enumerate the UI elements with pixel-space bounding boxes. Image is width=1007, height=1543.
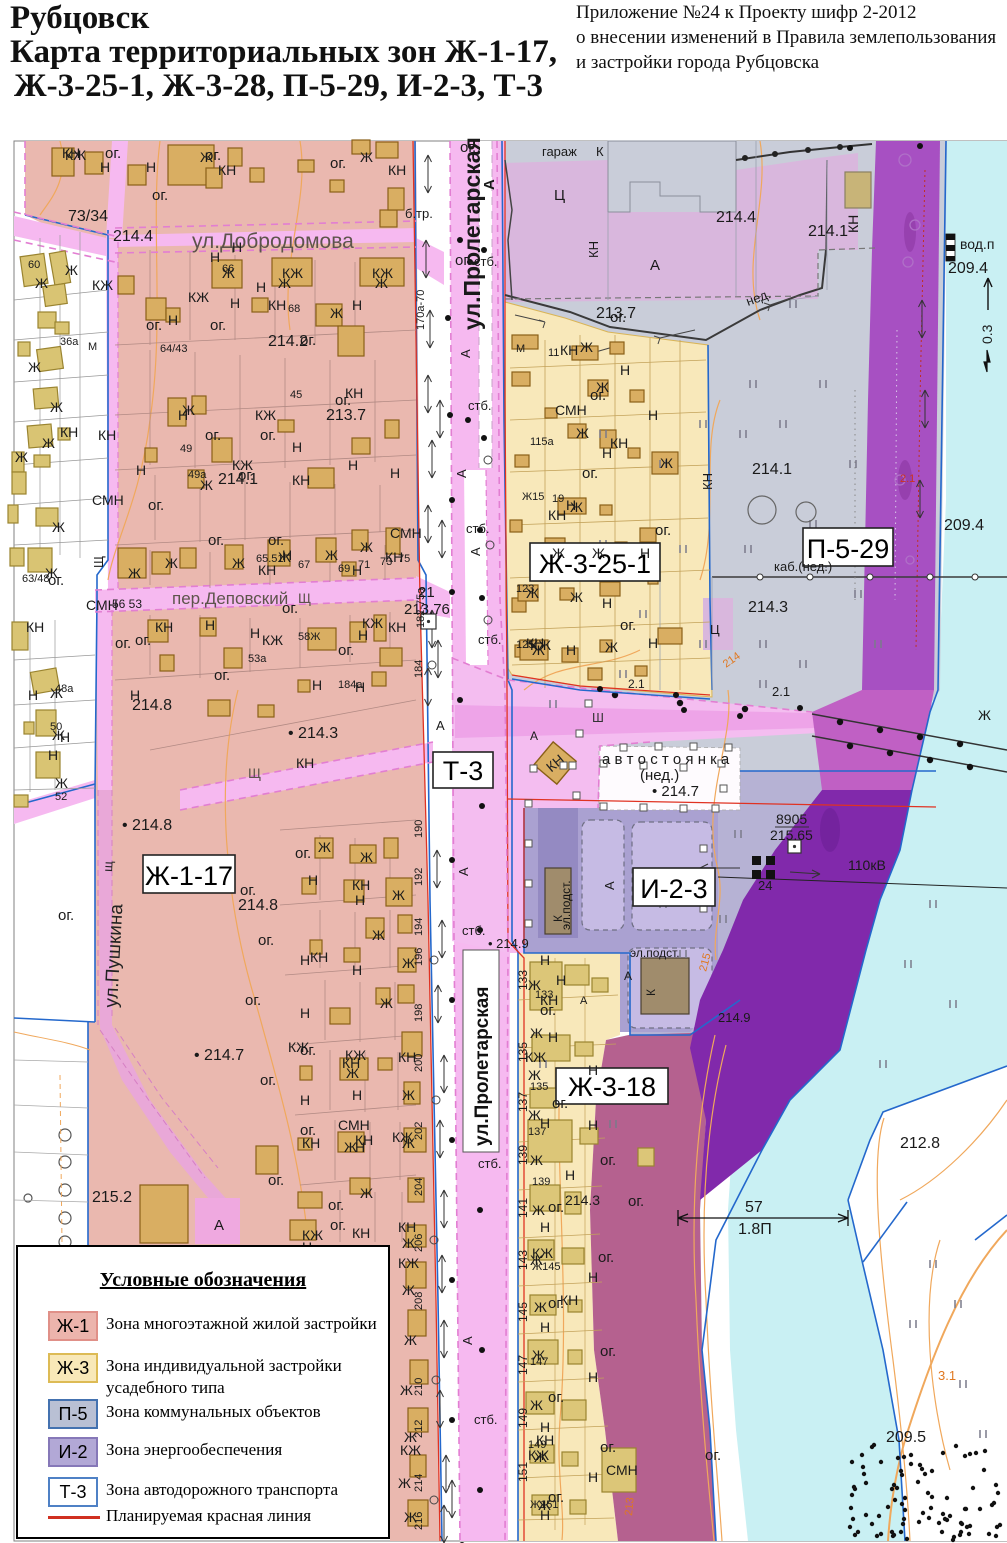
- svg-text:ог.: ог.: [455, 252, 471, 269]
- svg-text:Н: Н: [648, 635, 658, 651]
- svg-text:204: 204: [413, 1178, 425, 1196]
- svg-text:КЖ: КЖ: [65, 147, 86, 163]
- svg-text:ог.: ог.: [460, 139, 476, 156]
- svg-text:145: 145: [516, 1302, 530, 1322]
- svg-text:Н: Н: [556, 972, 566, 988]
- svg-text:Ж: Ж: [530, 1397, 543, 1413]
- svg-text:КЖ: КЖ: [400, 1442, 421, 1458]
- svg-text:А: А: [458, 349, 473, 358]
- svg-text:Ж-1-17: Ж-1-17: [145, 861, 233, 891]
- svg-text:Н: Н: [136, 462, 146, 478]
- svg-text:Т-3: Т-3: [443, 756, 484, 786]
- svg-text:Н: Н: [620, 362, 630, 378]
- svg-text:КЖ: КЖ: [532, 1245, 553, 1261]
- svg-text:Н: Н: [250, 625, 260, 641]
- svg-text:ог.: ог.: [620, 617, 636, 634]
- svg-text:КН: КН: [218, 162, 236, 178]
- svg-text:ог.: ог.: [600, 1439, 616, 1456]
- svg-text:Ж: Ж: [28, 359, 41, 375]
- svg-text:45: 45: [290, 389, 302, 401]
- svg-text:КЖ: КЖ: [302, 1227, 323, 1243]
- svg-text:КН: КН: [345, 385, 363, 401]
- svg-text:КН: КН: [26, 619, 44, 635]
- svg-text:149: 149: [516, 1408, 530, 1428]
- svg-text:А: А: [481, 179, 498, 190]
- svg-text:А: А: [650, 257, 660, 274]
- svg-text:ог.: ог.: [214, 667, 230, 684]
- svg-text:М: М: [88, 341, 97, 353]
- svg-text:Н: Н: [300, 1092, 310, 1108]
- svg-text:Ж: Ж: [532, 1202, 545, 1218]
- svg-text:КЖ: КЖ: [362, 615, 383, 631]
- svg-text:КЖ: КЖ: [345, 1047, 366, 1063]
- svg-text:73: 73: [380, 556, 392, 568]
- svg-text:50: 50: [50, 721, 62, 733]
- svg-text:ул.Пролетарская: ул.Пролетарская: [472, 987, 493, 1146]
- svg-text:ог.: ог.: [338, 642, 354, 659]
- svg-text:А: А: [624, 969, 632, 983]
- svg-text:214.9: 214.9: [718, 1010, 751, 1025]
- svg-text:а в т о с т о я н к а: а в т о с т о я н к а: [602, 751, 730, 768]
- svg-text:ог.: ог.: [705, 1447, 721, 1464]
- svg-text:СМН: СМН: [92, 492, 124, 508]
- svg-text:ог.: ог.: [552, 1095, 568, 1112]
- svg-text:Ж: Ж: [35, 275, 48, 291]
- svg-text:А: А: [456, 867, 471, 876]
- svg-text:213: 213: [623, 1497, 637, 1516]
- svg-text:ог.: ог.: [260, 1072, 276, 1089]
- svg-text:0.3: 0.3: [979, 324, 995, 344]
- svg-text:214.1: 214.1: [808, 223, 848, 240]
- svg-text:ог.: ог.: [135, 632, 151, 649]
- svg-text:57: 57: [745, 1199, 763, 1216]
- svg-text:КН: КН: [292, 472, 310, 488]
- svg-text:И-2-3: И-2-3: [640, 874, 707, 904]
- svg-text:123: 123: [516, 583, 534, 595]
- svg-text:Н: Н: [640, 545, 650, 561]
- svg-text:214.4: 214.4: [113, 228, 153, 245]
- svg-text:ог.: ог.: [210, 317, 226, 334]
- svg-text:Ж: Ж: [318, 839, 331, 855]
- svg-text:ог.: ог.: [208, 532, 224, 549]
- svg-text:ог.: ог.: [582, 465, 598, 482]
- svg-text:48а: 48а: [55, 683, 74, 695]
- svg-text:151: 151: [516, 1462, 530, 1482]
- svg-text:ог.: ог.: [295, 845, 311, 862]
- svg-text:КН: КН: [60, 424, 78, 440]
- svg-text:стб.: стб.: [466, 521, 490, 536]
- svg-text:133: 133: [535, 989, 553, 1001]
- svg-text:ог.: ог.: [328, 1197, 344, 1214]
- svg-text:209.5: 209.5: [886, 1429, 926, 1446]
- svg-text:стб.: стб.: [474, 254, 498, 269]
- svg-text:ог.: ог.: [600, 1343, 616, 1360]
- svg-text:Н: Н: [210, 249, 220, 265]
- svg-text:Ж: Ж: [592, 545, 605, 561]
- svg-text:стб.: стб.: [468, 398, 492, 413]
- svg-text:215.65: 215.65: [770, 827, 813, 843]
- svg-text:214.8: 214.8: [238, 897, 278, 914]
- svg-text:ог.: ог.: [260, 427, 276, 444]
- svg-text:Н: Н: [352, 962, 362, 978]
- svg-text:65.51: 65.51: [256, 553, 284, 565]
- svg-text:71: 71: [358, 559, 370, 571]
- svg-text:170а-70: 170а-70: [415, 290, 427, 330]
- svg-text:Ж: Ж: [404, 1509, 417, 1525]
- svg-text:147: 147: [516, 1355, 530, 1375]
- svg-text:3.1: 3.1: [938, 1368, 956, 1383]
- svg-text:58Ж: 58Ж: [298, 631, 320, 643]
- svg-text:Ж: Ж: [404, 1332, 417, 1348]
- svg-text:ог.: ог.: [655, 522, 671, 539]
- svg-text:КН: КН: [352, 1225, 370, 1241]
- svg-text:Ж: Ж: [580, 339, 593, 355]
- svg-text:214.1: 214.1: [752, 461, 792, 478]
- svg-text:125: 125: [516, 639, 534, 651]
- svg-text:Щ: Щ: [298, 590, 311, 606]
- svg-text:Н: Н: [540, 1219, 550, 1235]
- svg-text:68: 68: [288, 303, 300, 315]
- svg-text:стб.: стб.: [462, 923, 486, 938]
- svg-text:А: А: [436, 718, 445, 733]
- svg-text:КЖ: КЖ: [262, 632, 283, 648]
- svg-text:49а: 49а: [188, 469, 207, 481]
- svg-text:Ж: Ж: [200, 149, 213, 165]
- svg-text:КЖ: КЖ: [92, 277, 113, 293]
- svg-text:М: М: [516, 343, 525, 355]
- svg-text:115а: 115а: [530, 436, 555, 448]
- svg-text:КН: КН: [355, 1132, 373, 1148]
- svg-text:Ж: Ж: [360, 1185, 373, 1201]
- svg-text:Н: Н: [602, 595, 612, 611]
- svg-text:Ж: Ж: [392, 887, 405, 903]
- svg-text:КН: КН: [296, 755, 314, 771]
- svg-text:ог.: ог.: [628, 1193, 644, 1210]
- svg-text:Ж: Ж: [325, 547, 338, 563]
- svg-text:63/48: 63/48: [22, 573, 50, 585]
- svg-text:Ц: Ц: [554, 187, 565, 204]
- svg-text:ог.: ог.: [548, 1389, 564, 1406]
- svg-text:Н: Н: [390, 465, 400, 481]
- svg-text:Ж: Ж: [380, 995, 393, 1011]
- svg-text:А: А: [580, 995, 588, 1007]
- svg-text:Щ: Щ: [91, 556, 106, 568]
- svg-text:гараж: гараж: [542, 144, 577, 159]
- svg-text:СМН: СМН: [338, 1117, 370, 1133]
- svg-text:Ж: Ж: [360, 149, 373, 165]
- svg-text:143: 143: [516, 1250, 530, 1270]
- svg-text:КН: КН: [98, 427, 116, 443]
- svg-text:139: 139: [516, 1145, 530, 1165]
- svg-text:стб.: стб.: [478, 1156, 502, 1171]
- svg-text:67: 67: [298, 559, 310, 571]
- svg-text:213.7: 213.7: [326, 407, 366, 424]
- svg-text:209.4: 209.4: [944, 517, 984, 534]
- svg-text:209.4: 209.4: [948, 260, 988, 277]
- svg-text:Н: Н: [230, 295, 240, 311]
- svg-text:198: 198: [413, 1004, 425, 1022]
- svg-text:Н: Н: [256, 279, 266, 295]
- svg-text:пер.Деповский: пер.Деповский: [172, 589, 288, 608]
- svg-text:КЖ: КЖ: [288, 1039, 309, 1055]
- svg-text:Н: Н: [300, 952, 310, 968]
- svg-text:СМН: СМН: [606, 1462, 638, 1478]
- svg-text:137: 137: [528, 1126, 546, 1138]
- svg-text:Ж: Ж: [530, 1152, 543, 1168]
- svg-text:Н: Н: [566, 642, 576, 658]
- svg-text:Н: Н: [312, 677, 322, 693]
- svg-text:135: 135: [530, 1081, 548, 1093]
- svg-text:Ж: Ж: [15, 449, 28, 465]
- svg-text:215.2: 215.2: [92, 1189, 132, 1206]
- svg-text:212.8: 212.8: [900, 1135, 940, 1152]
- svg-text:К: К: [644, 989, 658, 996]
- svg-text:Ж: Ж: [552, 545, 565, 561]
- svg-text:Н: Н: [588, 1062, 598, 1078]
- svg-text:КЖ: КЖ: [188, 289, 209, 305]
- svg-text:Н: Н: [292, 439, 302, 455]
- svg-text:ог.: ог.: [610, 309, 626, 326]
- svg-text:А: А: [454, 469, 469, 478]
- svg-text:147: 147: [530, 1356, 548, 1368]
- svg-text:Н: Н: [300, 1005, 310, 1021]
- svg-text:КН: КН: [388, 162, 406, 178]
- svg-text:каб.(нед.): каб.(нед.): [774, 559, 832, 574]
- svg-text:52: 52: [55, 791, 67, 803]
- svg-text:Н: Н: [588, 1469, 598, 1485]
- svg-text:Ж151: Ж151: [530, 1499, 559, 1511]
- svg-text:110кВ: 110кВ: [848, 857, 886, 873]
- svg-text:182-75а: 182-75а: [415, 587, 427, 628]
- svg-text:Ж: Ж: [402, 1235, 415, 1251]
- svg-text:Н: Н: [588, 1117, 598, 1133]
- svg-text:Ж: Ж: [52, 519, 65, 535]
- svg-text:КН: КН: [310, 949, 328, 965]
- svg-text:ог.: ог.: [146, 317, 162, 334]
- svg-text:2.1: 2.1: [900, 473, 915, 485]
- svg-text:Ж: Ж: [402, 1282, 415, 1298]
- svg-text:А: А: [460, 1336, 475, 1345]
- svg-text:КН: КН: [560, 342, 578, 358]
- svg-text:149: 149: [528, 1439, 546, 1451]
- svg-text:КЖ: КЖ: [232, 457, 253, 473]
- svg-text:11: 11: [548, 347, 559, 359]
- svg-text:Н: Н: [352, 1087, 362, 1103]
- svg-text:КН: КН: [586, 241, 601, 258]
- svg-text:КН: КН: [155, 619, 173, 635]
- svg-text:КН: КН: [548, 507, 566, 523]
- svg-text:Н: Н: [168, 312, 178, 328]
- svg-text:2.1: 2.1: [628, 677, 645, 691]
- svg-text:А: А: [214, 1217, 224, 1234]
- svg-text:Ж: Ж: [978, 707, 991, 723]
- svg-text:Ж: Ж: [50, 399, 63, 415]
- svg-text:СМН: СМН: [555, 402, 587, 418]
- svg-text:КН: КН: [388, 619, 406, 635]
- svg-text:ог.: ог.: [148, 497, 164, 514]
- svg-text:Н: Н: [548, 1029, 558, 1045]
- svg-text:КН: КН: [302, 1135, 320, 1151]
- svg-text:Ж: Ж: [360, 539, 373, 555]
- svg-text:Ж: Ж: [660, 455, 673, 471]
- svg-text:Н: Н: [205, 617, 215, 633]
- svg-text:КН: КН: [610, 435, 628, 451]
- svg-text:ог.: ог.: [58, 907, 74, 924]
- svg-text:ул.Пролетарская: ул.Пролетарская: [459, 137, 485, 330]
- svg-text:Ш: Ш: [592, 710, 604, 725]
- svg-text:75: 75: [398, 553, 410, 565]
- svg-text:• 214.7: • 214.7: [194, 1047, 244, 1064]
- svg-text:214.3: 214.3: [748, 599, 788, 616]
- svg-text:66: 66: [222, 263, 234, 275]
- svg-text:184: 184: [413, 660, 425, 678]
- svg-text:Ж: Ж: [570, 589, 583, 605]
- svg-text:194: 194: [413, 918, 425, 936]
- svg-text:53а: 53а: [248, 653, 267, 665]
- svg-text:ог.: ог.: [598, 1249, 614, 1266]
- svg-text:Н: Н: [352, 297, 362, 313]
- svg-text:Ж: Ж: [232, 555, 245, 571]
- svg-text:ог.: ог.: [300, 332, 316, 349]
- svg-text:• 214.8: • 214.8: [122, 817, 172, 834]
- svg-text:Н: Н: [648, 407, 658, 423]
- svg-text:ог.: ог.: [330, 155, 346, 172]
- svg-text:КЖ: КЖ: [282, 265, 303, 281]
- svg-text:Ж: Ж: [570, 499, 583, 515]
- svg-text:А: А: [530, 729, 538, 743]
- svg-text:ог.: ог.: [268, 1172, 284, 1189]
- svg-text:60: 60: [28, 259, 40, 271]
- svg-text:Ж: Ж: [128, 565, 141, 581]
- svg-text:214: 214: [413, 1474, 425, 1492]
- svg-text:КЖ: КЖ: [372, 265, 393, 281]
- svg-text:эл.подст.: эл.подст.: [630, 946, 680, 960]
- svg-text:Н: Н: [308, 872, 318, 888]
- svg-text:190: 190: [413, 820, 425, 838]
- svg-text:Н: Н: [540, 1319, 550, 1335]
- svg-text:КН: КН: [398, 1219, 416, 1235]
- svg-text:Ж: Ж: [534, 1299, 547, 1315]
- svg-text:СМН: СМН: [390, 525, 422, 541]
- svg-text:Ц: Ц: [710, 622, 720, 637]
- svg-text:Ж: Ж: [330, 305, 343, 321]
- svg-text:49: 49: [180, 443, 192, 455]
- svg-text:Ж-3-18: Ж-3-18: [568, 1072, 656, 1102]
- svg-text:• 214.7: • 214.7: [652, 783, 699, 800]
- svg-text:ог.: ог.: [600, 1152, 616, 1169]
- svg-text:ог.: ог.: [152, 187, 168, 204]
- svg-text:КН: КН: [700, 473, 715, 490]
- svg-text:24: 24: [758, 878, 772, 893]
- svg-text:Н: Н: [588, 1269, 598, 1285]
- svg-text:(нед.): (нед.): [640, 767, 679, 784]
- svg-text:214.3: 214.3: [565, 1192, 600, 1208]
- svg-text:ог.: ог.: [258, 932, 274, 949]
- svg-text:19: 19: [552, 493, 564, 505]
- svg-text:Ж: Ж: [596, 379, 609, 395]
- svg-text:Ж: Ж: [182, 402, 195, 418]
- svg-text:• 214.3: • 214.3: [288, 725, 338, 742]
- svg-text:64/43: 64/43: [160, 343, 188, 355]
- svg-text:ог.: ог.: [205, 427, 221, 444]
- svg-text:Ж: Ж: [576, 425, 589, 441]
- svg-text:Н: Н: [100, 159, 110, 175]
- svg-text:1.8П: 1.8П: [738, 1221, 772, 1238]
- svg-text:Ж: Ж: [402, 955, 415, 971]
- svg-text:Ж: Ж: [398, 1475, 411, 1491]
- svg-text:КЖ: КЖ: [398, 1255, 419, 1271]
- svg-text:Ж15: Ж15: [522, 491, 544, 503]
- svg-text:вод.п: вод.п: [960, 236, 994, 252]
- svg-text:ог.: ог.: [115, 635, 131, 652]
- svg-text:Ж: Ж: [360, 849, 373, 865]
- svg-text:стб.: стб.: [478, 632, 502, 647]
- svg-text:ог.: ог.: [245, 992, 261, 1009]
- svg-text:73/34: 73/34: [68, 208, 108, 225]
- svg-text:69: 69: [338, 563, 350, 575]
- svg-text:Ж: Ж: [372, 927, 385, 943]
- svg-text:139: 139: [532, 1176, 550, 1188]
- svg-text:36а: 36а: [60, 336, 79, 348]
- svg-text:ог.: ог.: [240, 882, 256, 899]
- svg-text:Ж: Ж: [165, 555, 178, 571]
- svg-text:Ж: Ж: [42, 435, 55, 451]
- svg-text:Н: Н: [146, 159, 156, 175]
- svg-text:210: 210: [413, 1378, 425, 1396]
- svg-text:Н: Н: [28, 687, 38, 703]
- svg-text:Ж: Ж: [528, 1107, 541, 1123]
- svg-text:Н: Н: [540, 952, 550, 968]
- svg-text:стб.: стб.: [474, 1412, 498, 1427]
- svg-text:8905: 8905: [776, 811, 807, 827]
- svg-text:А: А: [468, 547, 483, 556]
- svg-text:Н: Н: [355, 892, 365, 908]
- svg-text:КЖ: КЖ: [392, 1129, 413, 1145]
- svg-text:214.4: 214.4: [716, 209, 756, 226]
- svg-text:Ж: Ж: [605, 639, 618, 655]
- svg-text:Ж: Ж: [530, 1025, 543, 1041]
- svg-text:Н: Н: [48, 747, 58, 763]
- svg-text:ог.: ог.: [548, 1199, 564, 1216]
- svg-text:б.тр.: б.тр.: [405, 206, 433, 221]
- svg-text:Ж: Ж: [55, 775, 68, 791]
- svg-text:141: 141: [516, 1198, 530, 1218]
- svg-text:щ: щ: [100, 860, 116, 872]
- svg-text:КН: КН: [268, 297, 286, 313]
- svg-text:К: К: [596, 144, 604, 159]
- svg-text:Н: Н: [130, 687, 140, 703]
- svg-text:КЖ: КЖ: [525, 1049, 546, 1065]
- svg-text:Ж: Ж: [65, 262, 78, 278]
- svg-text:184а: 184а: [338, 679, 363, 691]
- svg-text:ог.: ог.: [282, 600, 298, 617]
- svg-text:Н: Н: [588, 1369, 598, 1385]
- svg-text:Ж: Ж: [402, 1087, 415, 1103]
- svg-text:2.1: 2.1: [772, 684, 790, 699]
- svg-text:КЖ: КЖ: [255, 407, 276, 423]
- svg-text:А: А: [602, 881, 617, 890]
- svg-text:Н: Н: [348, 457, 358, 473]
- svg-text:Ж: Ж: [400, 1382, 413, 1398]
- svg-text:СМН: СМН: [86, 597, 118, 613]
- svg-text:К: К: [551, 915, 565, 922]
- svg-text:КН: КН: [398, 1049, 416, 1065]
- svg-text:ог.: ог.: [330, 1217, 346, 1234]
- svg-text:Щ: Щ: [248, 765, 261, 781]
- svg-text:192: 192: [413, 868, 425, 886]
- svg-text:Н: Н: [232, 239, 242, 255]
- svg-text:КН: КН: [560, 1292, 578, 1308]
